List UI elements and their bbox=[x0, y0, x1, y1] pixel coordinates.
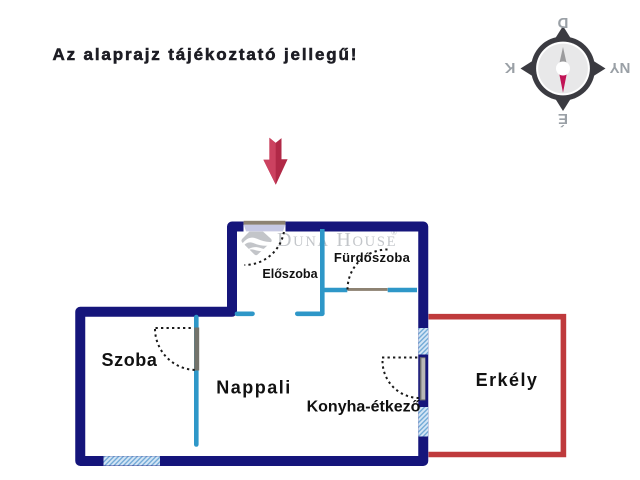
svg-text:Erkély: Erkély bbox=[476, 370, 539, 390]
svg-text:Konyha-étkező: Konyha-étkező bbox=[307, 399, 421, 416]
svg-text:Fürdőszoba: Fürdőszoba bbox=[334, 250, 411, 265]
svg-text:Előszoba: Előszoba bbox=[262, 267, 318, 281]
svg-text:DUNA HOUSE: DUNA HOUSE bbox=[277, 229, 397, 251]
svg-text:Szoba: Szoba bbox=[101, 350, 157, 370]
svg-text:D: D bbox=[557, 14, 568, 31]
svg-text:NY: NY bbox=[610, 59, 631, 76]
svg-text:É: É bbox=[558, 110, 568, 127]
svg-text:K: K bbox=[504, 59, 515, 76]
svg-text:Az alaprajz tájékoztató jelleg: Az alaprajz tájékoztató jellegű! bbox=[53, 45, 359, 64]
svg-text:Nappali: Nappali bbox=[216, 378, 292, 398]
